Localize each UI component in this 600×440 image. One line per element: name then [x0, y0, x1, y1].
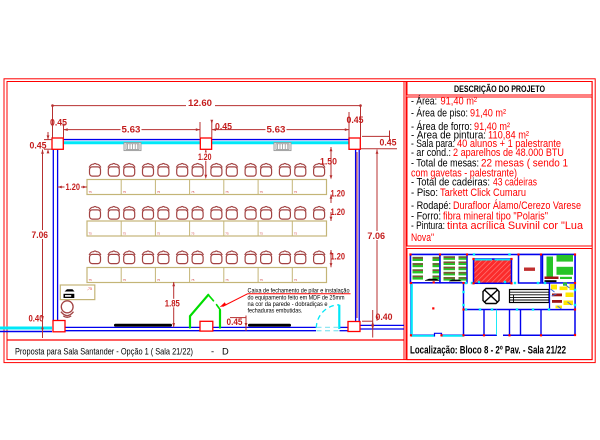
- svg-text:Nova": Nova": [411, 232, 434, 244]
- svg-text:0.45: 0.45: [380, 138, 397, 148]
- svg-text:7.06: 7.06: [32, 230, 49, 240]
- svg-text:75: 75: [294, 278, 298, 282]
- svg-text:1.20: 1.20: [331, 207, 346, 217]
- svg-text:0.40: 0.40: [376, 312, 393, 322]
- svg-text:75: 75: [225, 232, 229, 236]
- svg-text:Localização: Bloco 8 - 2º Pav.: Localização: Bloco 8 - 2º Pav. - Sala 21…: [410, 345, 566, 357]
- svg-text:- Área:: - Área:: [411, 95, 437, 108]
- svg-text:75: 75: [89, 190, 93, 194]
- svg-text:0.45: 0.45: [227, 317, 243, 327]
- svg-text:75: 75: [225, 190, 229, 194]
- svg-text:1.85: 1.85: [165, 299, 180, 309]
- svg-text:75: 75: [294, 190, 298, 194]
- svg-text:1.20: 1.20: [331, 252, 346, 262]
- svg-text:0.45: 0.45: [30, 141, 47, 151]
- svg-text:75: 75: [191, 278, 195, 282]
- svg-text:0.45: 0.45: [347, 115, 364, 125]
- svg-text:Caixa de fechamento de pilar e: Caixa de fechamento de pilar e instalaçã…: [248, 287, 350, 294]
- svg-text:-: -: [211, 346, 214, 356]
- svg-text:1.20: 1.20: [66, 182, 81, 192]
- svg-text:12.60: 12.60: [188, 98, 212, 108]
- svg-text:75: 75: [225, 278, 229, 282]
- svg-text:0.40: 0.40: [29, 313, 44, 323]
- svg-text:- Pintura:: - Pintura:: [411, 220, 445, 232]
- svg-text:5.63: 5.63: [122, 124, 141, 134]
- svg-text:75: 75: [89, 278, 93, 282]
- svg-text:75: 75: [191, 232, 195, 236]
- svg-text:75: 75: [260, 190, 264, 194]
- svg-text:75: 75: [157, 232, 161, 236]
- svg-text:Proposta para Sala Santander -: Proposta para Sala Santander - Opção 1 (…: [15, 346, 193, 356]
- svg-text:,75: ,75: [87, 287, 92, 291]
- svg-text:75: 75: [260, 232, 264, 236]
- svg-text:1.50: 1.50: [320, 157, 337, 167]
- svg-text:75: 75: [157, 190, 161, 194]
- svg-text:1.20: 1.20: [331, 189, 346, 199]
- svg-text:fechaduras embutidas.: fechaduras embutidas.: [248, 307, 303, 314]
- svg-text:75: 75: [123, 278, 127, 282]
- svg-text:D: D: [222, 346, 229, 356]
- svg-text:5.63: 5.63: [267, 124, 286, 134]
- svg-text:75: 75: [123, 190, 127, 194]
- svg-text:91,40 m²: 91,40 m²: [441, 96, 478, 108]
- svg-text:75: 75: [89, 232, 93, 236]
- svg-text:75: 75: [123, 232, 127, 236]
- svg-text:- Área de piso:: - Área de piso:: [411, 107, 468, 120]
- svg-text:91,40 m²: 91,40 m²: [470, 108, 506, 120]
- svg-text:1.20: 1.20: [198, 152, 212, 162]
- svg-text:75: 75: [157, 278, 161, 282]
- svg-text:- Piso:: - Piso:: [411, 187, 438, 199]
- svg-text:DESCRIÇÃO DO PROJETO: DESCRIÇÃO DO PROJETO: [454, 84, 545, 95]
- svg-text:Tarkett Click Cumaru: Tarkett Click Cumaru: [440, 187, 526, 199]
- svg-text:7.06: 7.06: [367, 231, 385, 241]
- svg-text:75: 75: [294, 232, 298, 236]
- svg-text:75: 75: [191, 190, 195, 194]
- svg-text:75: 75: [260, 278, 264, 282]
- svg-text:tinta acrílica Suvinil cor "Lu: tinta acrílica Suvinil cor "Lua: [447, 220, 584, 232]
